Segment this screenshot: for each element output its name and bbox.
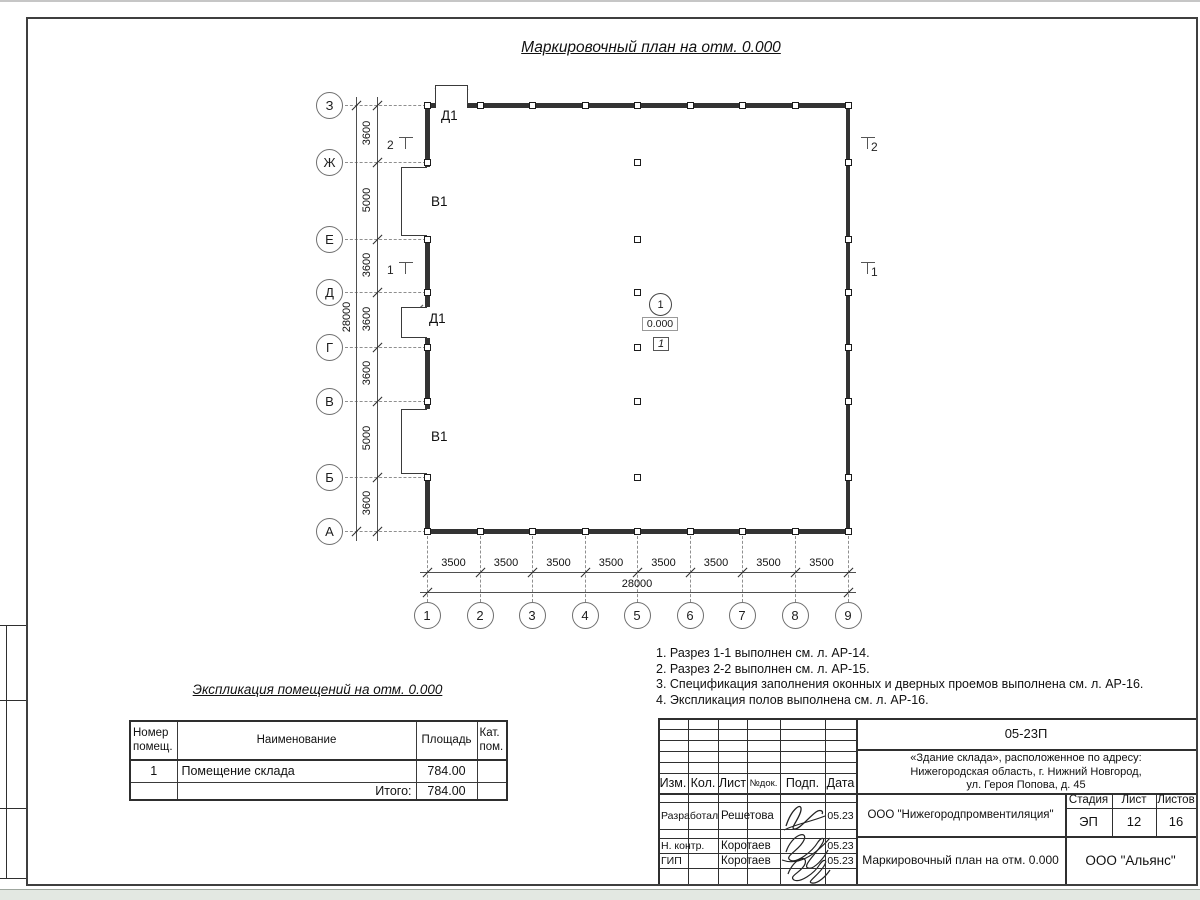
stage-label: Стадия (1065, 793, 1112, 808)
section-mark-number: 1 (871, 265, 878, 279)
axis-label-circle: 1 (414, 602, 441, 629)
column-marker (424, 344, 431, 351)
axis-label-circle: Е (316, 226, 343, 253)
column-marker (424, 289, 431, 296)
column-marker (582, 102, 589, 109)
client-org: ООО "Альянс" (1065, 836, 1196, 884)
door-label: Д1 (441, 108, 458, 123)
axis-label-circle: 5 (624, 602, 651, 629)
column-marker (424, 159, 431, 166)
schedule-header-name: Наименование (177, 721, 416, 760)
floor-type-marker: 1 (653, 337, 669, 351)
column-marker (424, 102, 431, 109)
signature-developer (782, 798, 828, 832)
section-mark-number: 2 (387, 138, 394, 152)
titleblock-line (658, 729, 856, 730)
sign-date: 05.23 (825, 838, 856, 853)
project-address-line: ул. Героя Попова, д. 45 (856, 778, 1196, 792)
column-marker (582, 528, 589, 535)
column-marker (477, 528, 484, 535)
room-number-marker: 1 (649, 293, 672, 316)
section-mark-bar (399, 137, 413, 138)
axis-grid-line (345, 401, 426, 402)
column-marker (845, 159, 852, 166)
axis-grid-line (345, 477, 426, 478)
column-marker (845, 398, 852, 405)
column-marker (634, 344, 641, 351)
section-mark-stem (405, 137, 406, 149)
dimension-text: 3500 (634, 557, 694, 569)
dimension-text: 3500 (529, 557, 589, 569)
dimension-text: 3500 (476, 557, 536, 569)
section-mark-stem (867, 262, 868, 274)
dimension-text: 3500 (686, 557, 746, 569)
column-marker (477, 102, 484, 109)
axis-label-circle: 7 (729, 602, 756, 629)
axis-label-circle: А (316, 518, 343, 545)
section-mark-stem (405, 262, 406, 274)
table-total-row: Итого: 784.00 (130, 782, 507, 800)
section-mark-bar (861, 137, 875, 138)
column-marker (792, 528, 799, 535)
axis-grid-line (345, 239, 426, 240)
top-strip (0, 0, 1200, 2)
dim-line-total-v (356, 97, 357, 541)
column-marker (634, 474, 641, 481)
margin-stamp-cell (0, 700, 26, 701)
column-marker (424, 398, 431, 405)
axis-grid-line (345, 292, 426, 293)
column-marker (845, 474, 852, 481)
sheet-value: 12 (1112, 808, 1156, 837)
axis-label-circle: 9 (835, 602, 862, 629)
door-recess (401, 307, 427, 338)
sheets-value: 16 (1156, 808, 1196, 837)
column-marker (792, 102, 799, 109)
axis-label-circle: 3 (519, 602, 546, 629)
column-marker (845, 102, 852, 109)
wall-right (846, 103, 851, 534)
schedule-title: Экспликация помещений на отм. 0.000 (129, 682, 506, 697)
note-line: 1. Разрез 1-1 выполнен см. л. АР-14. (656, 646, 870, 660)
room-area: 784.00 (416, 760, 477, 782)
revision-header: Подп. (780, 773, 825, 793)
dim-line-total-h (420, 592, 856, 593)
schedule-header-cat: Кат. пом. (477, 721, 507, 760)
section-mark-bar (861, 262, 875, 263)
sign-name: Коротаев (718, 853, 783, 868)
note-line: 3. Спецификация заполнения оконных и две… (656, 677, 1143, 691)
column-marker (529, 528, 536, 535)
axis-label-circle: Г (316, 334, 343, 361)
column-marker (634, 398, 641, 405)
gate-label: В1 (431, 194, 448, 209)
titleblock-line (658, 740, 856, 741)
wall-left (425, 103, 430, 167)
column-marker (634, 528, 641, 535)
column-marker (739, 102, 746, 109)
gate-recess (401, 167, 427, 236)
revision-header: Изм. (658, 773, 688, 793)
section-mark-number: 2 (871, 140, 878, 154)
total-label: Итого: (177, 782, 416, 800)
axis-label-circle: Ж (316, 149, 343, 176)
dimension-text: 3600 (361, 463, 373, 543)
room-name: Помещение склада (177, 760, 416, 782)
column-marker (634, 102, 641, 109)
sheet-label: Лист (1112, 793, 1156, 808)
sign-name: Решетова (718, 802, 783, 829)
revision-header: Лист (718, 773, 747, 793)
revision-header: Дата (825, 773, 856, 793)
column-marker (687, 102, 694, 109)
column-marker (634, 289, 641, 296)
doc-number: 05-23П (856, 718, 1196, 749)
margin-stamp-cell (0, 625, 26, 626)
wall-left (425, 474, 430, 534)
project-address-line: Нижегородская область, г. Нижний Новгоро… (856, 765, 1196, 779)
section-mark-bar (399, 262, 413, 263)
margin-stamp-cell (0, 878, 26, 879)
design-org: ООО "Нижегородпромвентиляция" (856, 793, 1065, 836)
dimension-text: 3500 (581, 557, 641, 569)
dimension-total-text: 28000 (597, 578, 677, 590)
axis-label-circle: 2 (467, 602, 494, 629)
sheet-name: Маркировочный план на отм. 0.000 (856, 836, 1065, 884)
project-address-line: «Здание склада», расположенное по адресу… (856, 751, 1196, 765)
margin-stamp-cell (0, 808, 26, 809)
column-marker (845, 344, 852, 351)
column-marker (739, 528, 746, 535)
axis-label-circle: З (316, 92, 343, 119)
sign-date: 05.23 (825, 802, 856, 829)
stage-value: ЭП (1065, 808, 1112, 837)
room-schedule-table: Номер помещ. Наименование Площадь Кат. п… (129, 720, 508, 801)
axis-grid-line (345, 162, 426, 163)
dimension-total-text: 28000 (341, 277, 353, 357)
margin-stamp-cell (6, 625, 7, 878)
axis-label-circle: Д (316, 279, 343, 306)
axis-label-circle: В (316, 388, 343, 415)
revision-header: Кол. (688, 773, 718, 793)
column-marker (845, 236, 852, 243)
note-line: 4. Экспликация полов выполнена см. л. АР… (656, 693, 929, 707)
column-marker (687, 528, 694, 535)
bottom-strip (0, 889, 1200, 900)
sign-role: Разработал (658, 802, 721, 829)
dimension-text: 3500 (424, 557, 484, 569)
dimension-text: 3500 (792, 557, 852, 569)
titleblock-line (658, 829, 856, 830)
column-marker (424, 474, 431, 481)
door-label: Д1 (429, 311, 446, 326)
room-number: 1 (130, 760, 177, 782)
axis-label-circle: Б (316, 464, 343, 491)
table-row: 1 Помещение склада 784.00 (130, 760, 507, 782)
sign-date: 05.23 (825, 853, 856, 868)
sign-name: Коротаев (718, 838, 783, 853)
wall-left (425, 236, 430, 307)
drawing-title: Маркировочный план на отм. 0.000 (451, 39, 851, 57)
column-marker (634, 159, 641, 166)
top-door-vestibule (435, 85, 468, 104)
titleblock-line (658, 868, 856, 869)
total-area: 784.00 (416, 782, 477, 800)
axis-label-circle: 6 (677, 602, 704, 629)
column-marker (424, 236, 431, 243)
section-mark-number: 1 (387, 263, 394, 277)
dimension-text: 3500 (739, 557, 799, 569)
gate-label: В1 (431, 429, 448, 444)
revision-header: №док. (747, 773, 780, 793)
dim-line-segments-v (377, 97, 378, 541)
axis-label-circle: 4 (572, 602, 599, 629)
gate-recess (401, 409, 427, 474)
note-line: 2. Разрез 2-2 выполнен см. л. АР-15. (656, 662, 870, 676)
schedule-header-num: Номер помещ. (130, 721, 177, 760)
titleblock-line (658, 762, 856, 763)
axis-grid-line (345, 347, 426, 348)
sheets-label: Листов (1156, 793, 1196, 808)
schedule-header-area: Площадь (416, 721, 477, 760)
sign-role: ГИП (658, 853, 721, 868)
drawing-sheet: Маркировочный план на отм. 0.000 Эксплик… (0, 0, 1200, 900)
titleblock-line (658, 751, 856, 752)
column-marker (845, 528, 852, 535)
column-marker (529, 102, 536, 109)
room-elevation-marker: 0.000 (642, 317, 678, 331)
room-cat (477, 760, 507, 782)
sign-role: Н. контр. (658, 838, 721, 853)
column-marker (634, 236, 641, 243)
axis-label-circle: 8 (782, 602, 809, 629)
column-marker (424, 528, 431, 535)
section-mark-stem (867, 137, 868, 149)
column-marker (845, 289, 852, 296)
